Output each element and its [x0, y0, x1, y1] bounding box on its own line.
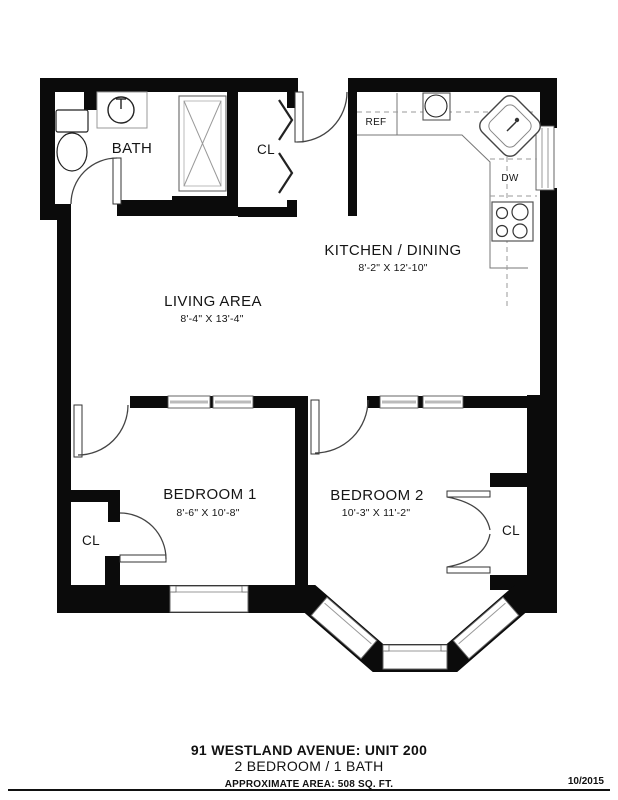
bath-label: BATH: [112, 140, 153, 157]
footer-rule: [8, 789, 610, 791]
bedroom1-closet-label: CL: [82, 533, 100, 548]
plan-address: 91 WESTLAND AVENUE: UNIT 200: [0, 742, 618, 758]
stove-icon: [492, 202, 533, 241]
closet1-door: [120, 513, 166, 562]
floor-plan-drawing: BATH CL REF DW KITCHEN / DINING 8'-2" X …: [0, 0, 618, 800]
wall-stub-bath: [84, 92, 97, 110]
living-dims: 8'-4" X 13'-4": [180, 313, 243, 325]
wall-closet2-top: [490, 473, 527, 487]
wall-kitchen-left: [348, 92, 357, 216]
wall-top-kitchen: [348, 78, 557, 92]
window: [213, 396, 253, 408]
bedroom1-dims: 8'-6" X 10'-8": [176, 507, 239, 519]
bedroom2-closet-label: CL: [502, 523, 520, 538]
wall-left-bath: [40, 78, 55, 220]
bay-window-left: [311, 597, 377, 658]
floor-plan-page: BATH CL REF DW KITCHEN / DINING 8'-2" X …: [0, 0, 618, 800]
bedroom2-dims: 10'-3" X 11'-2": [342, 507, 411, 519]
closet2-doors: [447, 491, 490, 573]
bedroom2-label: BEDROOM 2: [330, 487, 424, 504]
wall-top-left: [40, 78, 298, 92]
plan-unit-type: 2 BEDROOM / 1 BATH: [0, 758, 618, 774]
wall-closet1-jamb-top: [108, 490, 120, 522]
wall-bath-bottom-left: [40, 204, 71, 220]
wall-right-lower: [527, 395, 557, 612]
kitchen-sink-icon: [476, 92, 544, 160]
wall-bath-bottom: [117, 200, 238, 216]
entry-door: [295, 92, 347, 142]
toilet-icon: [56, 110, 88, 171]
wall-left-lower: [57, 218, 71, 588]
bay-window-right: [453, 597, 519, 658]
hall-closet-label: CL: [257, 142, 275, 157]
bifold-door-icon: [279, 100, 292, 193]
plan-date: 10/2015: [568, 776, 604, 787]
wall-right-mid: [540, 188, 557, 395]
wall-between-bedrooms: [295, 396, 308, 588]
window: [170, 586, 248, 612]
bath-sink-icon: [97, 92, 147, 128]
bathtub-icon: [179, 96, 226, 191]
wall-right-top: [540, 78, 557, 128]
kitchen-window: [536, 126, 554, 190]
doors: [71, 92, 490, 573]
wall-hallcloset-jamb-bottom: [287, 200, 297, 217]
window: [423, 396, 463, 408]
kitchen-dims: 8'-2" X 12'-10": [358, 262, 427, 274]
bedroom1-label: BEDROOM 1: [163, 486, 257, 503]
bedroom1-door: [74, 405, 128, 457]
window: [380, 396, 418, 408]
wall-closet1-jamb-bottom: [105, 556, 120, 588]
living-label: LIVING AREA: [164, 293, 262, 310]
dishwasher-label: DW: [501, 173, 519, 184]
bedroom2-door: [311, 400, 368, 454]
footer-title-block: 91 WESTLAND AVENUE: UNIT 200 2 BEDROOM /…: [0, 742, 618, 790]
kitchen-appliance-icon: [423, 93, 450, 120]
bay-window-center: [383, 645, 447, 669]
refrigerator-label: REF: [366, 117, 387, 128]
kitchen-label: KITCHEN / DINING: [324, 242, 461, 259]
window: [168, 396, 210, 408]
